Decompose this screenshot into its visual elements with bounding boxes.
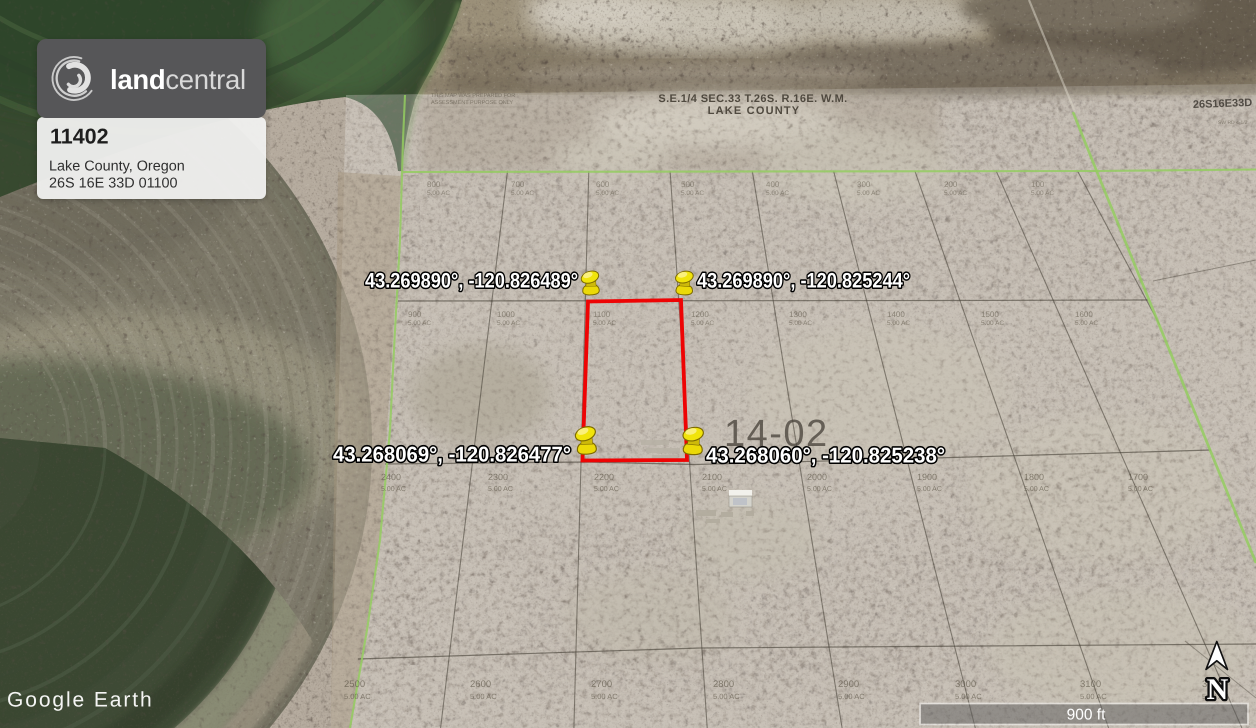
svg-text:5.00 AC: 5.00 AC — [596, 190, 619, 197]
svg-text:1900: 1900 — [917, 472, 937, 482]
svg-text:5.00 AC: 5.00 AC — [594, 486, 619, 493]
svg-text:5.00 AC: 5.00 AC — [1024, 486, 1049, 493]
svg-text:5.00 AC: 5.00 AC — [488, 486, 513, 493]
svg-text:43.268069°, -120.826477°: 43.268069°, -120.826477° — [333, 443, 571, 467]
svg-text:1300: 1300 — [789, 310, 807, 319]
svg-text:5.00 AC: 5.00 AC — [681, 190, 704, 197]
svg-text:300: 300 — [857, 180, 871, 189]
svg-text:1100: 1100 — [593, 310, 611, 319]
svg-text:5.00 AC: 5.00 AC — [838, 692, 865, 701]
svg-text:5.00 AC: 5.00 AC — [944, 190, 967, 197]
svg-text:100: 100 — [1031, 180, 1045, 189]
svg-text:S.E.1/4 SEC.33 T.26S. R.16E. W: S.E.1/4 SEC.33 T.26S. R.16E. W.M. — [658, 93, 847, 105]
svg-text:5.00 AC: 5.00 AC — [713, 692, 740, 701]
svg-text:5.00 AC: 5.00 AC — [470, 692, 497, 701]
svg-text:THIS MAP WAS PREPARED FOR: THIS MAP WAS PREPARED FOR — [431, 93, 515, 99]
svg-text:2800: 2800 — [713, 679, 734, 690]
svg-text:2700: 2700 — [591, 679, 612, 690]
svg-text:5.00 AC: 5.00 AC — [766, 190, 789, 197]
svg-text:5.00 AC: 5.00 AC — [344, 692, 371, 701]
svg-text:5.00 AC: 5.00 AC — [427, 190, 450, 197]
svg-text:2600: 2600 — [470, 679, 491, 690]
svg-text:600: 600 — [596, 180, 610, 189]
svg-text:2000: 2000 — [807, 472, 827, 482]
svg-text:5.00 AC: 5.00 AC — [408, 320, 431, 327]
svg-text:landcentral: landcentral — [110, 64, 246, 95]
svg-text:2300: 2300 — [488, 472, 508, 482]
svg-text:5.00 AC: 5.00 AC — [807, 486, 832, 493]
svg-text:5.00 AC: 5.00 AC — [917, 486, 942, 493]
svg-text:1600: 1600 — [1075, 310, 1093, 319]
svg-text:11402: 11402 — [50, 125, 109, 149]
svg-text:2400: 2400 — [381, 472, 401, 482]
svg-text:2500: 2500 — [344, 679, 365, 690]
svg-text:3100: 3100 — [1080, 679, 1101, 690]
svg-text:Google Earth: Google Earth — [7, 689, 154, 712]
svg-text:43.269890°, -120.825244°: 43.269890°, -120.825244° — [697, 270, 910, 293]
svg-text:ASSESSMENT PURPOSE ONLY: ASSESSMENT PURPOSE ONLY — [431, 100, 513, 106]
svg-text:1800: 1800 — [1024, 472, 1044, 482]
svg-text:5.00 AC: 5.00 AC — [511, 190, 534, 197]
svg-text:5.00 AC: 5.00 AC — [702, 486, 727, 493]
svg-text:5.00 AC: 5.00 AC — [857, 190, 880, 197]
svg-text:2900: 2900 — [838, 679, 859, 690]
svg-text:5.00 AC: 5.00 AC — [691, 320, 714, 327]
svg-text:26S 16E 33D 01100: 26S 16E 33D 01100 — [49, 176, 178, 192]
svg-text:500: 500 — [681, 180, 695, 189]
svg-text:5.00 AC: 5.00 AC — [1031, 190, 1054, 197]
svg-text:LAKE COUNTY: LAKE COUNTY — [708, 105, 801, 117]
svg-text:400: 400 — [766, 180, 780, 189]
svg-text:5.00 AC: 5.00 AC — [789, 320, 812, 327]
svg-text:800: 800 — [427, 180, 441, 189]
svg-text:5.00 AC: 5.00 AC — [887, 320, 910, 327]
svg-text:700: 700 — [511, 180, 525, 189]
svg-text:43.268060°, -120.825238°: 43.268060°, -120.825238° — [706, 444, 945, 468]
svg-text:5.00 AC: 5.00 AC — [955, 692, 982, 701]
svg-text:43.269890°, -120.826489°: 43.269890°, -120.826489° — [365, 270, 578, 293]
svg-text:26S16E33D: 26S16E33D — [1193, 97, 1253, 111]
svg-text:1200: 1200 — [691, 310, 709, 319]
svg-text:1400: 1400 — [887, 310, 905, 319]
svg-text:5.00 AC: 5.00 AC — [981, 320, 1004, 327]
svg-text:900: 900 — [408, 310, 422, 319]
svg-text:1000: 1000 — [497, 310, 515, 319]
svg-text:5.00 AC: 5.00 AC — [381, 486, 406, 493]
svg-text:N: N — [1207, 673, 1229, 706]
svg-text:SW RD 4-1/2: SW RD 4-1/2 — [1218, 120, 1248, 126]
svg-text:1500: 1500 — [981, 310, 999, 319]
svg-text:5.00 AC: 5.00 AC — [1128, 486, 1153, 493]
svg-text:5.00 AC: 5.00 AC — [591, 692, 618, 701]
svg-text:900 ft: 900 ft — [1067, 707, 1106, 724]
svg-text:5.00 AC: 5.00 AC — [1080, 692, 1107, 701]
svg-text:2100: 2100 — [702, 472, 722, 482]
svg-text:5.00 AC: 5.00 AC — [593, 320, 616, 327]
svg-text:1700: 1700 — [1128, 472, 1148, 482]
svg-text:Lake County, Oregon: Lake County, Oregon — [49, 159, 185, 175]
svg-text:5.00 AC: 5.00 AC — [497, 320, 520, 327]
svg-text:200: 200 — [944, 180, 958, 189]
svg-text:3000: 3000 — [955, 679, 976, 690]
svg-text:5.00 AC: 5.00 AC — [1075, 320, 1098, 327]
svg-text:2200: 2200 — [594, 472, 614, 482]
